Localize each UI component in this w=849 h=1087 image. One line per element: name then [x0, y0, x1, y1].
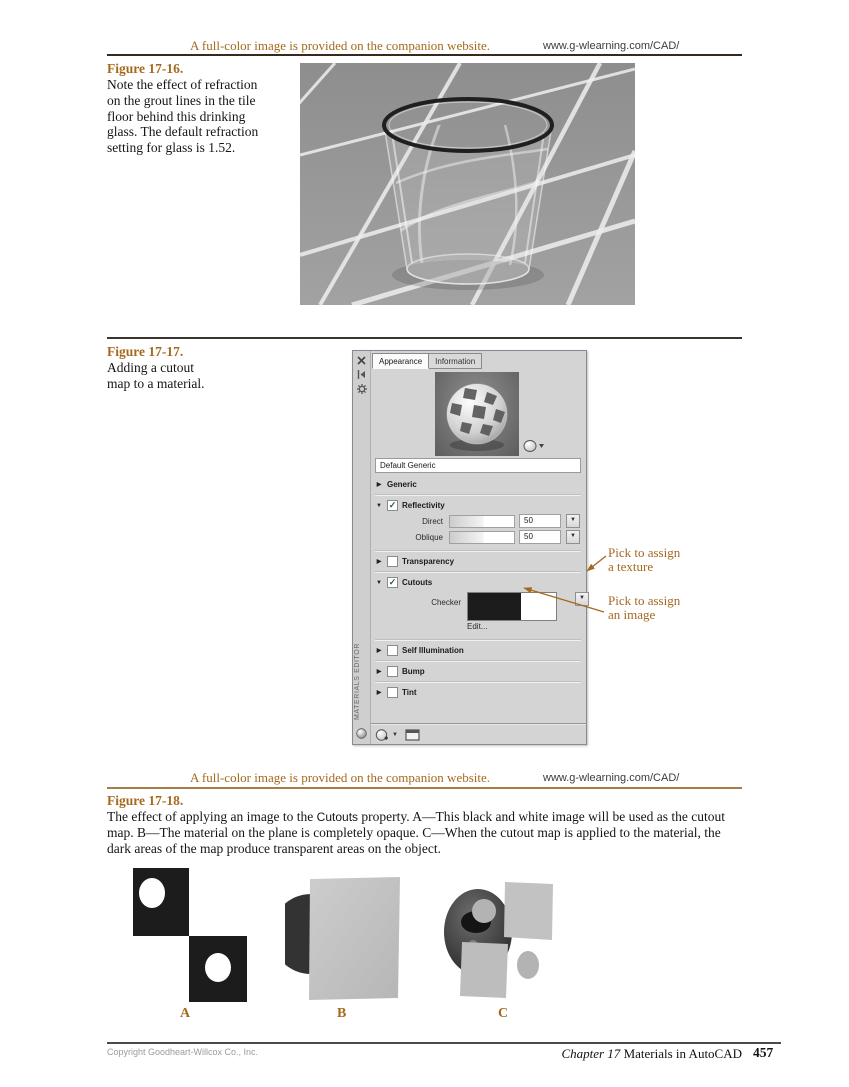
image-label-b: B	[337, 1006, 346, 1022]
collapsed-triangle-icon[interactable]: ▶	[375, 558, 383, 565]
divider	[375, 681, 581, 683]
companion-url-link-2[interactable]: www.g-wlearning.com/CAD/	[543, 772, 679, 784]
edit-link[interactable]: Edit...	[467, 622, 487, 631]
section-tint-label: Tint	[402, 688, 417, 697]
direct-slider[interactable]	[449, 515, 515, 528]
create-material-icon[interactable]	[375, 728, 389, 742]
expanded-triangle-icon[interactable]: ▼	[375, 580, 383, 586]
collapsed-triangle-icon[interactable]: ▶	[375, 689, 383, 696]
footer-chapter-number: Chapter 17	[561, 1046, 620, 1061]
tab-information[interactable]: Information	[429, 353, 482, 369]
checker-black-square-2	[189, 936, 247, 1002]
section-generic[interactable]: ▶ Generic	[375, 477, 581, 492]
figure-18-label: Figure 17-18.	[107, 793, 183, 809]
close-icon[interactable]	[357, 356, 366, 365]
divider	[375, 660, 581, 662]
bump-checkbox[interactable]	[387, 666, 398, 677]
figure-16-label: Figure 17-16.	[107, 61, 183, 77]
divider	[375, 639, 581, 641]
cutouts-checkbox[interactable]: ✓	[387, 577, 398, 588]
collapsed-triangle-icon[interactable]: ▶	[375, 481, 383, 488]
section-bump-label: Bump	[402, 667, 425, 676]
materials-editor-sphere-icon	[356, 728, 367, 739]
reflectivity-checkbox[interactable]: ✓	[387, 500, 398, 511]
sphere-dropdown-icon	[523, 439, 547, 453]
open-browser-panel-icon[interactable]	[405, 729, 420, 741]
section-cutouts-label: Cutouts	[402, 578, 432, 587]
section-self-illumination-label: Self Illumination	[402, 646, 464, 655]
figure-17-caption-line2: map to a material.	[107, 376, 204, 392]
direct-row: Direct 50 ▼	[375, 513, 581, 529]
oblique-label: Oblique	[375, 533, 449, 542]
create-material-dropdown-caret[interactable]: ▼	[392, 732, 398, 738]
auto-hide-icon[interactable]	[357, 370, 366, 379]
footer-rule	[107, 1042, 781, 1044]
oblique-dropdown-button[interactable]: ▼	[566, 530, 580, 544]
opaque-plane-illustration	[285, 870, 405, 1002]
cutout-hole-2	[205, 953, 231, 982]
panel-vertical-title: MATERIALS EDITOR	[354, 643, 361, 720]
section-rule	[107, 337, 742, 339]
textbook-page: A full-color image is provided on the co…	[0, 0, 849, 1087]
section-bump[interactable]: ▶ Bump	[375, 664, 581, 679]
cutout-result-illustration	[440, 875, 565, 1002]
figure-17-caption-line1: Adding a cutout	[107, 360, 194, 376]
figure-18-image-a	[133, 868, 247, 1003]
companion-url-link[interactable]: www.g-wlearning.com/CAD/	[543, 40, 679, 52]
figure-18-image-b	[285, 870, 405, 1002]
expanded-triangle-icon[interactable]: ▼	[375, 503, 383, 509]
section-reflectivity-label: Reflectivity	[402, 501, 445, 510]
figure-16-caption: Note the effect of refraction on the gro…	[107, 77, 265, 156]
section-transparency-label: Transparency	[402, 557, 454, 566]
footer-page-number: 457	[753, 1045, 773, 1061]
collapsed-triangle-icon[interactable]: ▶	[375, 647, 383, 654]
panel-tab-bar: AppearanceInformation	[372, 353, 482, 369]
callout-arrows	[500, 545, 650, 620]
section-self-illumination[interactable]: ▶ Self Illumination	[375, 643, 581, 658]
tab-appearance[interactable]: Appearance	[372, 353, 429, 369]
direct-label: Direct	[375, 517, 449, 526]
glass-photo-illustration	[300, 63, 635, 305]
figure-18-image-c	[440, 875, 565, 1002]
section-reflectivity[interactable]: ▼ ✓ Reflectivity	[375, 498, 581, 513]
panel-title-strip: MATERIALS EDITOR	[353, 351, 371, 744]
oblique-slider[interactable]	[449, 531, 515, 544]
footer-chapter-title: Materials in AutoCAD	[624, 1046, 742, 1061]
figure-17-label: Figure 17-17.	[107, 344, 183, 360]
image-label-c: C	[498, 1006, 508, 1022]
companion-notice-2: A full-color image is provided on the co…	[190, 770, 490, 786]
properties-gear-icon[interactable]	[357, 384, 367, 394]
checker-label: Checker	[375, 598, 461, 607]
material-preview-image	[435, 372, 519, 456]
companion-notice: A full-color image is provided on the co…	[190, 38, 490, 54]
transparency-checkbox[interactable]	[387, 556, 398, 567]
figure-16-glass-photo	[300, 63, 635, 305]
oblique-row: Oblique 50 ▼	[375, 529, 581, 545]
tint-checkbox[interactable]	[387, 687, 398, 698]
footer-chapter: Chapter 17 Materials in AutoCAD	[107, 1046, 742, 1062]
section-tint[interactable]: ▶ Tint	[375, 685, 581, 700]
checker-black-square-1	[133, 868, 189, 936]
figure-18-caption: The effect of applying an image to the C…	[107, 809, 746, 858]
banner-rule-2	[107, 787, 742, 789]
panel-bottom-toolbar: ▼	[371, 723, 586, 744]
divider	[375, 494, 581, 496]
cutout-hole-1	[139, 878, 165, 908]
figure-18-caption-before: The effect of applying an image to the	[107, 809, 317, 824]
banner-rule-top	[107, 54, 742, 56]
collapsed-triangle-icon[interactable]: ▶	[375, 668, 383, 675]
checker-sphere-preview	[435, 372, 519, 456]
image-label-a: A	[180, 1006, 190, 1022]
section-generic-label: Generic	[387, 480, 417, 489]
oblique-value[interactable]: 50	[519, 530, 561, 544]
figure-18-ui-term: Cutouts	[317, 810, 358, 824]
direct-dropdown-button[interactable]: ▼	[566, 514, 580, 528]
direct-value[interactable]: 50	[519, 514, 561, 528]
self-illumination-checkbox[interactable]	[387, 645, 398, 656]
material-name-field[interactable]: Default Generic	[375, 458, 581, 473]
preview-shape-dropdown[interactable]	[523, 439, 547, 453]
